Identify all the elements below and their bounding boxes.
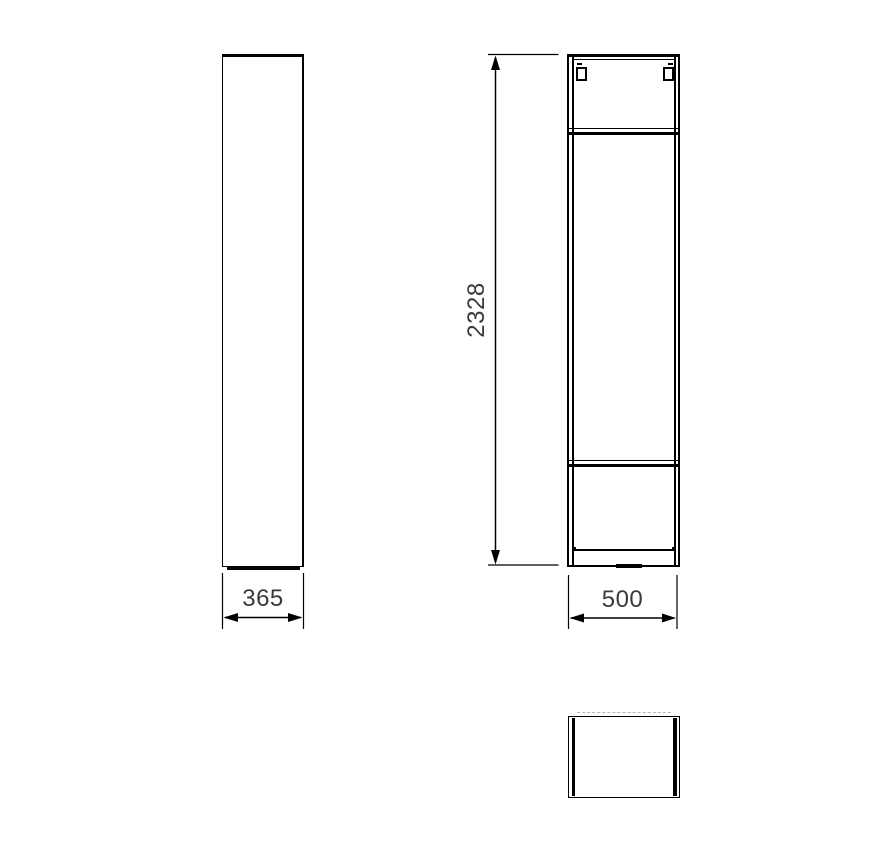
dim-365-arrowhead-right bbox=[288, 613, 303, 622]
base-shelf-cap-left bbox=[572, 547, 576, 551]
top-shelf-line-thin bbox=[569, 128, 678, 130]
dim-2328-arrowhead-bottom bbox=[491, 550, 500, 565]
front-bottom-foot-mark bbox=[616, 564, 642, 568]
mounting-bracket-right-tick bbox=[668, 63, 673, 65]
mounting-bracket-right bbox=[663, 67, 674, 81]
dimension-linework bbox=[0, 0, 872, 849]
technical-drawing-canvas: 365 2328 500 bbox=[0, 0, 872, 849]
bottom-shelf-line-thick bbox=[569, 464, 678, 467]
dimension-label-front-width: 500 bbox=[568, 588, 677, 612]
dimension-label-side-depth: 365 bbox=[222, 587, 304, 611]
side-view-panel bbox=[222, 54, 304, 567]
top-view-frame bbox=[568, 716, 680, 798]
bottom-shelf-line-thin bbox=[569, 460, 678, 462]
mounting-bracket-left-tick bbox=[577, 63, 582, 65]
dim-2328-arrowhead-top bbox=[491, 56, 500, 71]
front-top-inner-line bbox=[572, 59, 676, 61]
side-view-plinth bbox=[227, 567, 300, 570]
top-view-left-wall-bar bbox=[572, 718, 576, 796]
mounting-bracket-left bbox=[576, 67, 587, 81]
base-shelf-line bbox=[572, 549, 676, 551]
top-view-dashed-back-line bbox=[577, 712, 671, 713]
front-view-frame bbox=[567, 54, 680, 567]
top-shelf-line-thick bbox=[569, 132, 678, 135]
dim-365-arrowhead-left bbox=[224, 613, 239, 622]
dim-500-arrowhead-right bbox=[662, 614, 676, 623]
dim-500-arrowhead-left bbox=[570, 614, 585, 623]
top-view-right-wall-bar bbox=[673, 718, 677, 796]
base-shelf-cap-right bbox=[672, 547, 676, 551]
dimension-label-height: 2328 bbox=[465, 282, 489, 337]
